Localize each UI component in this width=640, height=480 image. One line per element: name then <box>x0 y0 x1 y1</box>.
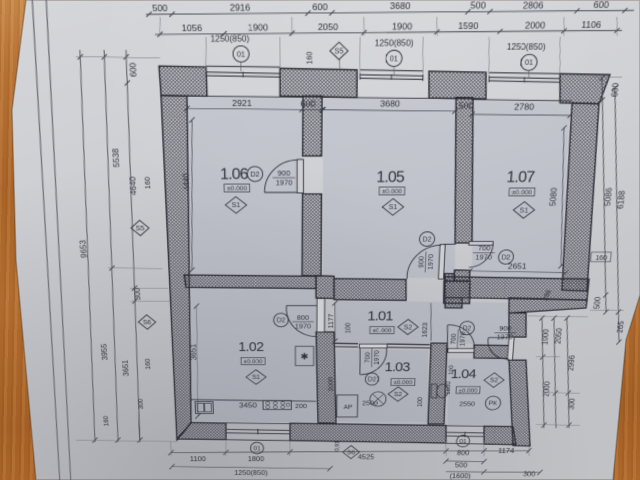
svg-text:1056: 1056 <box>181 22 202 33</box>
svg-text:300: 300 <box>133 287 142 300</box>
svg-text:2000: 2000 <box>326 377 335 391</box>
svg-text:S1: S1 <box>252 374 260 381</box>
svg-text:S2: S2 <box>394 391 402 398</box>
svg-text:600: 600 <box>128 62 138 77</box>
svg-text:±0.000: ±0.000 <box>372 328 392 334</box>
svg-text:700: 700 <box>363 352 372 363</box>
svg-text:S5: S5 <box>136 225 145 233</box>
svg-text:D2: D2 <box>422 236 431 243</box>
svg-text:4525: 4525 <box>358 454 375 461</box>
svg-text:2916: 2916 <box>230 2 251 13</box>
svg-text:1106: 1106 <box>581 19 602 30</box>
svg-text:✱: ✱ <box>300 353 308 362</box>
svg-text:1970: 1970 <box>275 178 292 187</box>
svg-text:100: 100 <box>344 323 352 333</box>
svg-text:4440: 4440 <box>182 173 192 191</box>
svg-text:2000: 2000 <box>542 381 552 397</box>
svg-text:(1600): (1600) <box>449 473 471 480</box>
svg-text:300: 300 <box>136 399 145 410</box>
svg-text:700: 700 <box>478 244 491 252</box>
svg-text:500: 500 <box>152 3 168 14</box>
svg-text:01: 01 <box>525 59 534 67</box>
svg-text:D2: D2 <box>462 325 471 332</box>
svg-text:1.05: 1.05 <box>376 169 405 186</box>
svg-text:2780: 2780 <box>514 102 535 112</box>
svg-text:100: 100 <box>416 397 424 407</box>
svg-text:9653: 9653 <box>77 240 88 258</box>
svg-text:1250(850): 1250(850) <box>234 470 268 477</box>
svg-text:1.02: 1.02 <box>238 341 264 355</box>
svg-text:5080: 5080 <box>547 187 559 206</box>
svg-text:S2: S2 <box>490 377 499 384</box>
svg-text:500: 500 <box>470 0 486 11</box>
svg-text:D2: D2 <box>501 254 510 261</box>
svg-text:2050: 2050 <box>554 328 564 344</box>
svg-text:2921: 2921 <box>232 98 252 108</box>
svg-text:±0.000: ±0.000 <box>227 186 248 193</box>
svg-text:900: 900 <box>499 325 512 333</box>
svg-text:1970: 1970 <box>295 322 311 330</box>
svg-text:S1: S1 <box>232 202 241 210</box>
svg-text:160: 160 <box>143 359 152 370</box>
svg-text:S1: S1 <box>519 207 528 215</box>
svg-text:2996: 2996 <box>567 355 577 371</box>
svg-text:1900: 1900 <box>392 21 413 32</box>
svg-text:D2: D2 <box>277 317 286 324</box>
svg-text:PK: PK <box>488 400 497 407</box>
svg-text:±0.000: ±0.000 <box>382 189 403 196</box>
svg-text:1800: 1800 <box>248 455 265 462</box>
svg-text:±0.000: ±0.000 <box>243 359 262 365</box>
svg-text:1174: 1174 <box>498 447 515 454</box>
svg-text:600: 600 <box>301 98 316 108</box>
svg-text:1500: 1500 <box>444 381 452 394</box>
svg-text:1.06: 1.06 <box>220 166 249 183</box>
svg-text:2050: 2050 <box>318 21 339 32</box>
svg-text:500: 500 <box>458 101 474 111</box>
svg-text:700: 700 <box>449 334 458 345</box>
svg-text:1900: 1900 <box>248 22 269 33</box>
svg-text:600: 600 <box>593 0 610 10</box>
svg-text:4640: 4640 <box>127 176 138 195</box>
svg-text:±0.000: ±0.000 <box>458 388 477 394</box>
svg-text:±0.000: ±0.000 <box>512 189 533 196</box>
svg-text:01: 01 <box>459 438 467 444</box>
svg-text:2651: 2651 <box>508 262 528 271</box>
svg-text:2000: 2000 <box>525 20 546 31</box>
svg-text:6188: 6188 <box>615 190 627 209</box>
svg-text:D2: D2 <box>368 376 377 383</box>
svg-text:600: 600 <box>312 1 328 12</box>
svg-text:1970: 1970 <box>426 254 435 270</box>
svg-text:265: 265 <box>616 321 626 333</box>
svg-text:1623: 1623 <box>420 323 429 338</box>
svg-text:S6: S6 <box>347 449 355 455</box>
svg-text:1590: 1590 <box>458 20 479 31</box>
svg-text:0,91: 0,91 <box>334 441 341 452</box>
svg-text:1.07: 1.07 <box>506 169 535 186</box>
svg-text:AP: AP <box>344 404 353 411</box>
svg-text:1970: 1970 <box>475 253 492 261</box>
svg-text:160: 160 <box>306 52 314 65</box>
svg-text:1.03: 1.03 <box>385 360 411 375</box>
svg-text:800: 800 <box>297 314 309 322</box>
svg-text:300: 300 <box>567 398 576 410</box>
svg-text:01: 01 <box>390 55 399 63</box>
svg-text:2550: 2550 <box>459 400 475 407</box>
svg-text:01: 01 <box>237 50 245 58</box>
svg-text:S2: S2 <box>404 324 413 331</box>
svg-text:5086: 5086 <box>602 187 614 206</box>
svg-text:S6: S6 <box>143 319 152 326</box>
svg-text:500: 500 <box>593 297 603 310</box>
svg-text:1250(850): 1250(850) <box>210 34 249 44</box>
svg-text:1177: 1177 <box>326 314 335 329</box>
svg-text:1100: 1100 <box>190 455 207 462</box>
svg-text:2500: 2500 <box>362 399 378 406</box>
svg-text:3680: 3680 <box>390 1 411 12</box>
svg-text:160: 160 <box>595 254 607 261</box>
svg-text:S1: S1 <box>389 204 398 212</box>
svg-text:1000: 1000 <box>541 329 551 345</box>
svg-text:1250(850): 1250(850) <box>375 38 414 48</box>
svg-text:3450: 3450 <box>239 401 257 409</box>
svg-text:900: 900 <box>416 256 425 268</box>
svg-text:160: 160 <box>143 177 153 189</box>
svg-text:1970: 1970 <box>496 333 513 341</box>
svg-text:3955: 3955 <box>99 344 110 361</box>
svg-text:1.01: 1.01 <box>367 309 393 324</box>
svg-text:1970: 1970 <box>372 350 381 365</box>
svg-text:2806: 2806 <box>523 0 544 10</box>
svg-text:160: 160 <box>101 416 110 426</box>
svg-text:900: 900 <box>277 169 290 178</box>
svg-text:200: 200 <box>295 402 307 409</box>
svg-text:300: 300 <box>523 471 536 478</box>
svg-text:S5: S5 <box>334 47 343 56</box>
svg-text:±0.000: ±0.000 <box>393 380 412 386</box>
svg-text:01: 01 <box>253 445 260 451</box>
svg-text:D2: D2 <box>250 171 259 179</box>
svg-text:5538: 5538 <box>110 148 121 167</box>
svg-text:3680: 3680 <box>380 99 400 109</box>
svg-text:800: 800 <box>457 450 470 457</box>
svg-text:1250(850): 1250(850) <box>506 42 546 52</box>
svg-text:3651: 3651 <box>188 344 198 361</box>
svg-text:3651: 3651 <box>120 360 130 377</box>
svg-text:500: 500 <box>455 462 468 469</box>
svg-text:100: 100 <box>448 365 455 375</box>
